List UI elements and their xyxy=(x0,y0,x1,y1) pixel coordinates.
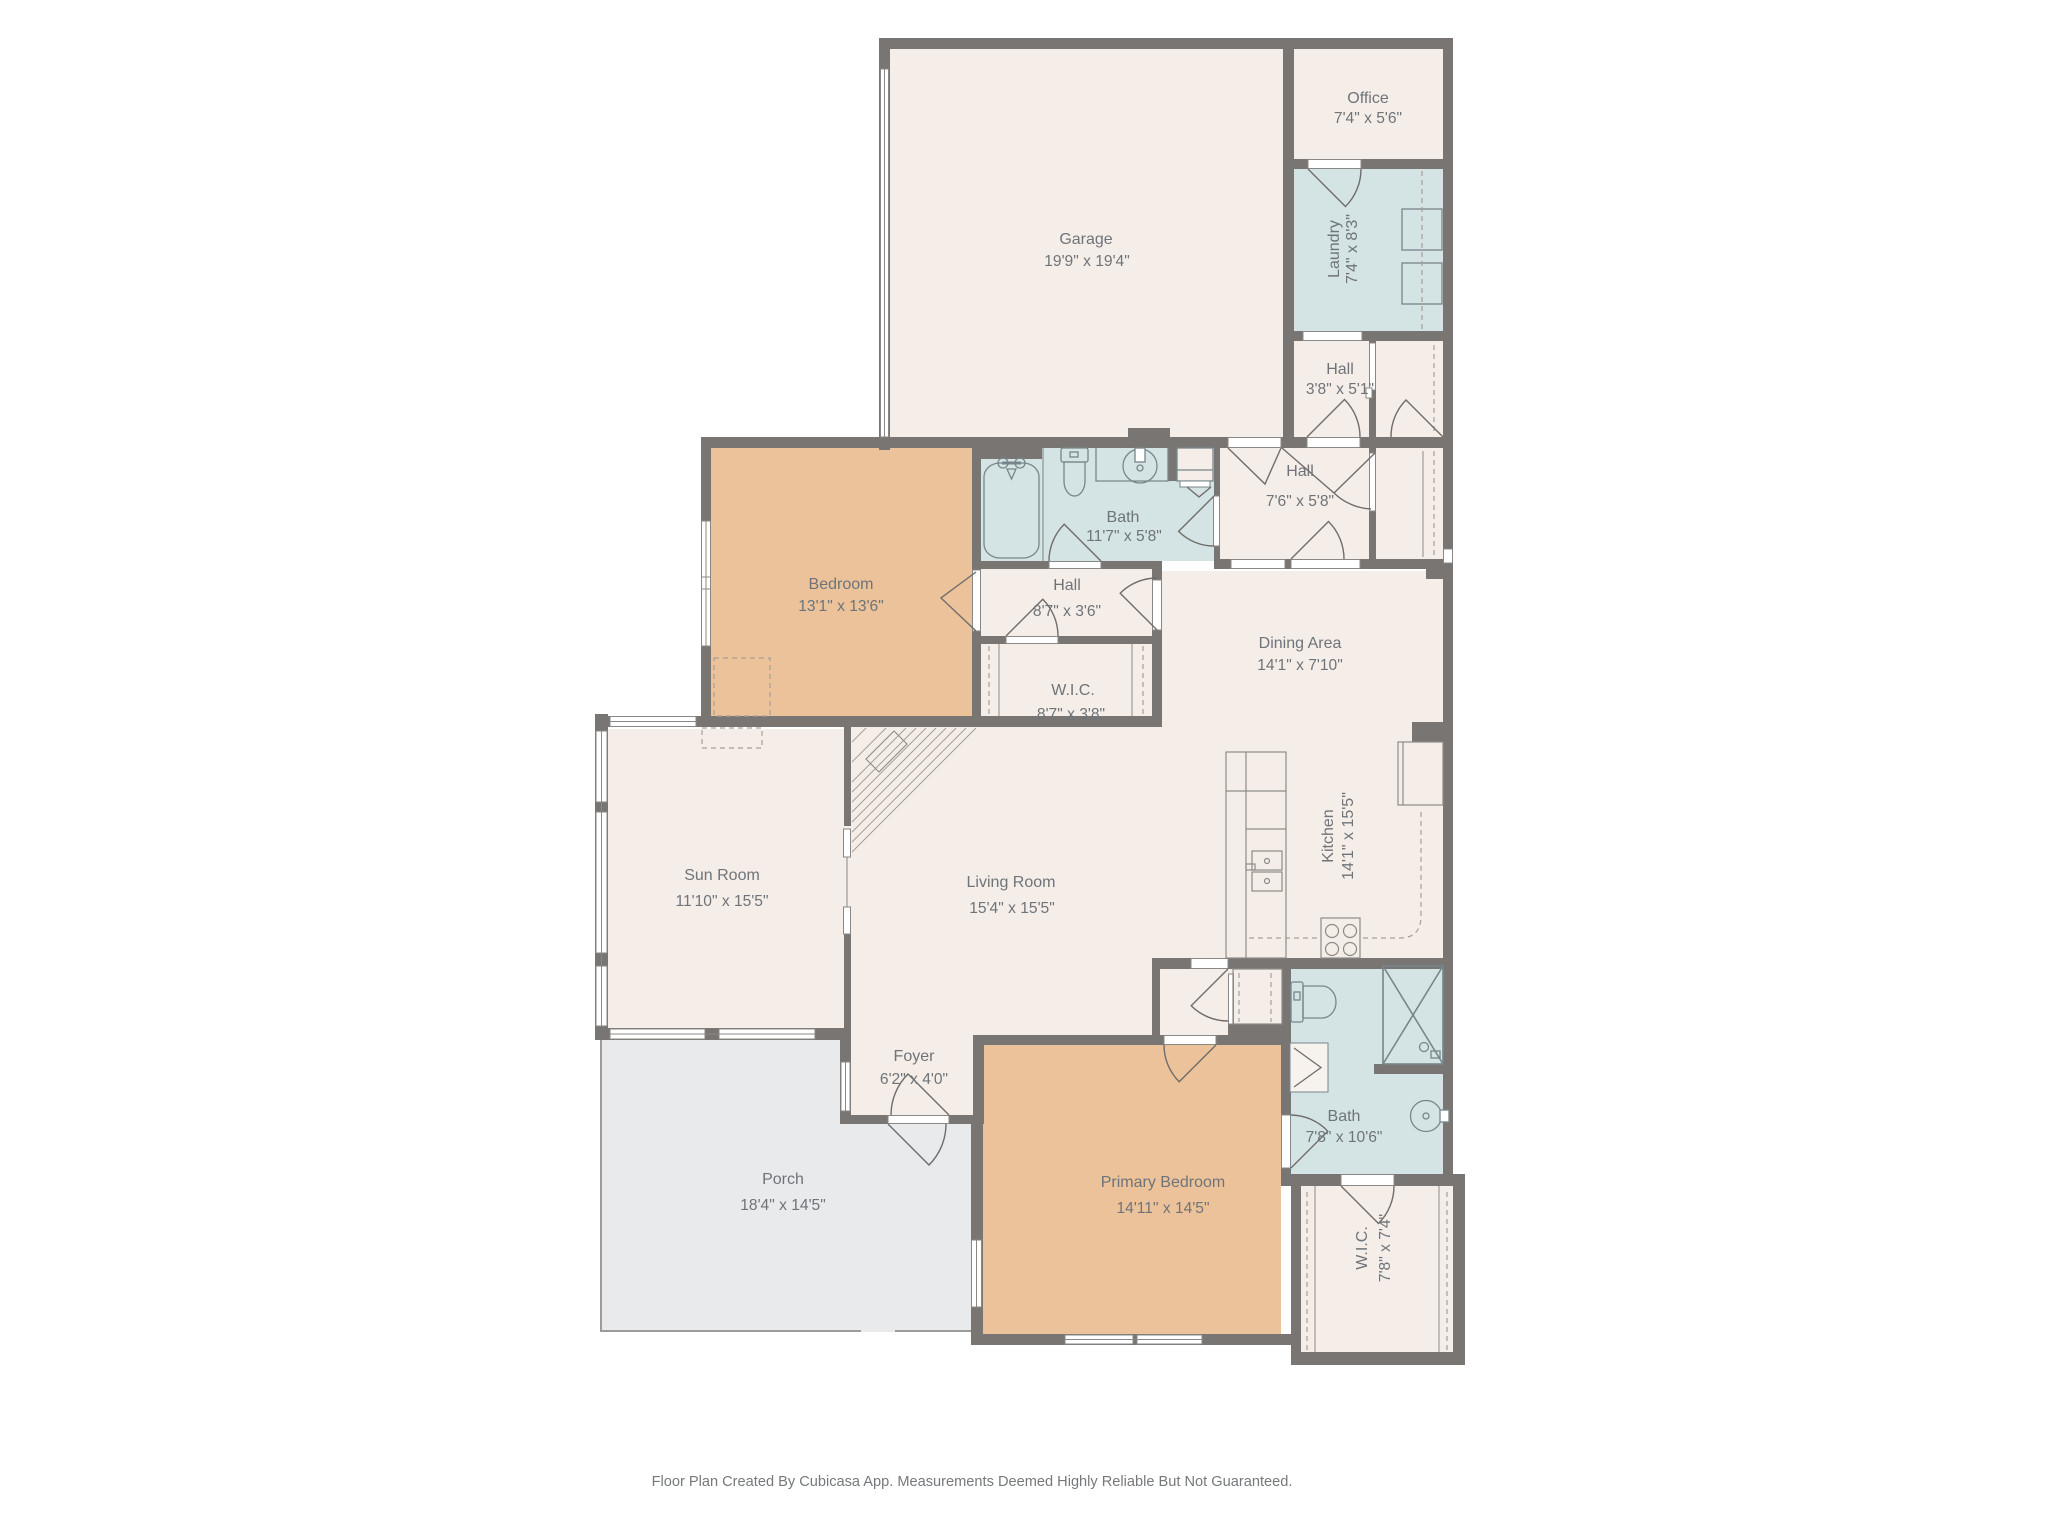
svg-text:Bath: Bath xyxy=(1328,1108,1361,1125)
svg-text:Primary Bedroom: Primary Bedroom xyxy=(1101,1174,1225,1191)
svg-text:7'6" x 5'8": 7'6" x 5'8" xyxy=(1266,493,1334,510)
svg-text:Hall: Hall xyxy=(1053,577,1081,594)
svg-text:7'8" x 7'4": 7'8" x 7'4" xyxy=(1377,1214,1394,1282)
svg-text:14'11" x 14'5": 14'11" x 14'5" xyxy=(1116,1200,1209,1217)
svg-text:Laundry: Laundry xyxy=(1326,220,1343,278)
svg-text:Bath: Bath xyxy=(1107,509,1140,526)
svg-text:7'8" x 10'6": 7'8" x 10'6" xyxy=(1306,1129,1383,1146)
svg-text:W.I.C.: W.I.C. xyxy=(1354,1226,1371,1270)
svg-text:3'8" x 5'1": 3'8" x 5'1" xyxy=(1306,381,1374,398)
svg-text:7'4" x 5'6": 7'4" x 5'6" xyxy=(1334,110,1402,127)
svg-text:6'2" x 4'0": 6'2" x 4'0" xyxy=(880,1071,948,1088)
svg-text:Porch: Porch xyxy=(762,1171,804,1188)
svg-text:Kitchen: Kitchen xyxy=(1320,809,1337,862)
svg-text:Bedroom: Bedroom xyxy=(809,576,874,593)
svg-text:Floor Plan Created By Cubicasa: Floor Plan Created By Cubicasa App. Meas… xyxy=(652,1474,1293,1490)
svg-text:11'7" x 5'8": 11'7" x 5'8" xyxy=(1086,528,1162,545)
svg-text:14'1" x 15'5": 14'1" x 15'5" xyxy=(1340,792,1357,880)
svg-text:Sun Room: Sun Room xyxy=(684,867,760,884)
svg-text:Hall: Hall xyxy=(1326,361,1354,378)
svg-text:14'1" x 7'10": 14'1" x 7'10" xyxy=(1257,657,1343,674)
svg-text:Office: Office xyxy=(1347,90,1389,107)
svg-text:Dining Area: Dining Area xyxy=(1259,635,1342,652)
svg-text:W.I.C.: W.I.C. xyxy=(1051,682,1095,699)
svg-text:Hall: Hall xyxy=(1286,463,1314,480)
svg-text:8'7" x 3'8": 8'7" x 3'8" xyxy=(1037,706,1105,723)
svg-text:19'9" x 19'4": 19'9" x 19'4" xyxy=(1044,253,1130,270)
svg-text:15'4" x 15'5": 15'4" x 15'5" xyxy=(969,900,1055,917)
svg-text:8'7" x 3'6": 8'7" x 3'6" xyxy=(1033,603,1101,620)
svg-text:Foyer: Foyer xyxy=(894,1048,936,1065)
svg-text:13'1" x 13'6": 13'1" x 13'6" xyxy=(798,598,884,615)
svg-text:Garage: Garage xyxy=(1059,231,1112,248)
svg-text:11'10" x 15'5": 11'10" x 15'5" xyxy=(675,893,768,910)
svg-text:18'4" x 14'5": 18'4" x 14'5" xyxy=(740,1197,826,1214)
svg-text:Living Room: Living Room xyxy=(967,874,1056,891)
svg-text:7'4" x 8'3": 7'4" x 8'3" xyxy=(1344,214,1361,284)
